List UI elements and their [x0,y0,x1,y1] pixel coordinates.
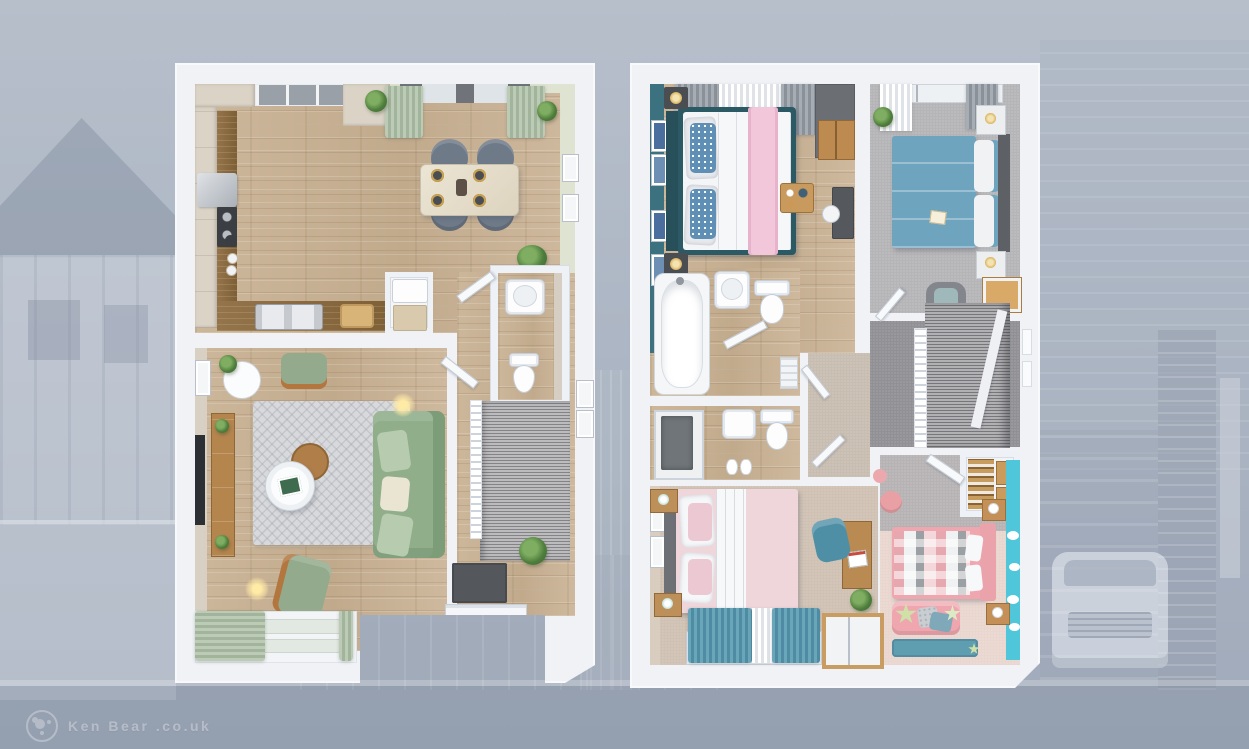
hall-picture [577,411,593,437]
hall-picture [577,381,593,407]
bath-tub [661,280,703,388]
extractor-hood [197,173,237,207]
botanical-print [563,155,578,181]
cloud-decal [1007,531,1019,540]
floor-lamp [245,577,269,601]
tv-unit-plant [215,535,229,549]
bear-paw-logo-icon [26,710,58,742]
gallery-frame [652,155,667,185]
bedroom3-teal-curtain [688,608,752,663]
bed4-checked-duvet [894,531,970,595]
bed1-pillow-blue [690,189,716,239]
wc-basin-bowl [513,285,537,307]
bed3-pillow-pink [688,503,712,541]
kitchen-wall-cabinet [195,84,255,107]
bed2-pillows [974,195,1000,247]
cloud-decal [1009,563,1020,571]
pink-pouf [880,491,902,513]
bed1-pink-throw [748,107,778,255]
sofa-cushion [380,476,411,512]
store-boxes [393,305,427,331]
bg-house-left-facade [0,255,176,525]
mint-lamp [658,494,669,505]
bed4-headboard [980,523,996,601]
red-book [847,550,868,568]
dining-curtain-left [385,86,423,138]
place-setting [431,194,444,207]
bedroom2-plant [873,107,893,127]
doormat [452,563,507,603]
stair-balustrade [471,401,481,538]
floor-lamp [391,393,415,417]
sofa-cushion [376,513,414,558]
gallery-frame [652,121,667,151]
bath-taps [676,277,684,285]
bed2-duvet [892,136,976,248]
bg-gate-post [1220,378,1240,578]
hanging-plant [537,101,557,121]
basin-bowl [721,278,743,300]
bedroom3-plant [850,589,872,611]
wardrobe-oak [818,120,855,160]
bed2-headboard [998,134,1010,252]
bay-curtain-bundle [195,611,265,661]
cloud-decal [1009,623,1020,631]
bed3-pillow-pink [688,559,712,595]
wall-tv [195,435,205,525]
bedroom3-sheer [752,608,772,663]
bg-house-right-facade [1040,40,1249,470]
toilet-bowl [760,294,784,324]
landing-window-slot [1022,361,1032,387]
ensuite-toilet-bowl [766,422,788,450]
watermark-text: Ken Bear .co.uk [68,718,211,734]
bedroom3-wardrobe [822,613,884,669]
bg-garden-wall [0,520,176,700]
hall-plant [519,537,547,565]
bg-car-grille [1068,612,1152,638]
bg-house-left-window [104,305,148,363]
bed1-pillow-blue [690,123,716,173]
ensuite-basin [722,409,756,439]
kettle [225,235,236,246]
gold-lamp [670,258,682,270]
kitchen-window [255,84,345,106]
place-setting [431,169,444,182]
teal-rug [892,639,978,657]
store-appliance [392,279,428,303]
dining-right-wall [560,93,575,273]
bedroom3-wall-art [651,537,664,567]
place-setting [473,169,486,182]
bay-curtain [339,611,353,661]
gold-lamp [670,92,682,104]
place-setting [473,194,486,207]
table-centrepiece [456,179,467,196]
bedroom3-teal-curtain [772,608,820,663]
bed3-runner [716,489,746,613]
breakfast-tray [780,183,814,213]
landing-window-slot [1022,329,1032,355]
bg-house-left-window [28,300,80,360]
gold-lamp [985,257,996,268]
tv-unit-plant [215,419,229,433]
desk-chair [822,205,840,223]
bed4-pillow [965,564,984,592]
bg-car-windshield [1064,560,1156,586]
plate [227,253,238,264]
bunny-lamp [992,607,1003,618]
bunny-lamp [988,503,999,514]
wc-side-wall [554,273,562,400]
gallery-frame [652,211,667,241]
landing-balustrade [915,329,926,447]
kitchen-sink [255,304,323,330]
armchair [281,353,327,389]
pink-pouf [873,469,887,483]
kitchen-base-units [195,107,217,328]
first-floor-plan [630,63,1040,688]
chopping-board [340,304,374,328]
gold-lamp [985,113,996,124]
staircase [480,401,570,561]
watermark: Ken Bear .co.uk [26,710,211,742]
plate [226,265,237,276]
living-wall-art [196,361,210,395]
shower-tray [661,416,693,470]
mint-lamp [662,598,673,609]
scene: Ken Bear .co.uk [0,0,1249,749]
bed1-headboard [666,111,678,251]
botanical-print [563,195,578,221]
bed2-pillows [974,140,1000,192]
magazine [929,210,947,225]
hanging-plant [365,90,387,112]
lamp-table-plant [219,355,237,373]
sofa-cushion [376,429,411,473]
slippers [740,459,752,475]
slippers [726,459,738,475]
towel-shelf [780,357,798,389]
ground-floor-plan [175,63,595,683]
